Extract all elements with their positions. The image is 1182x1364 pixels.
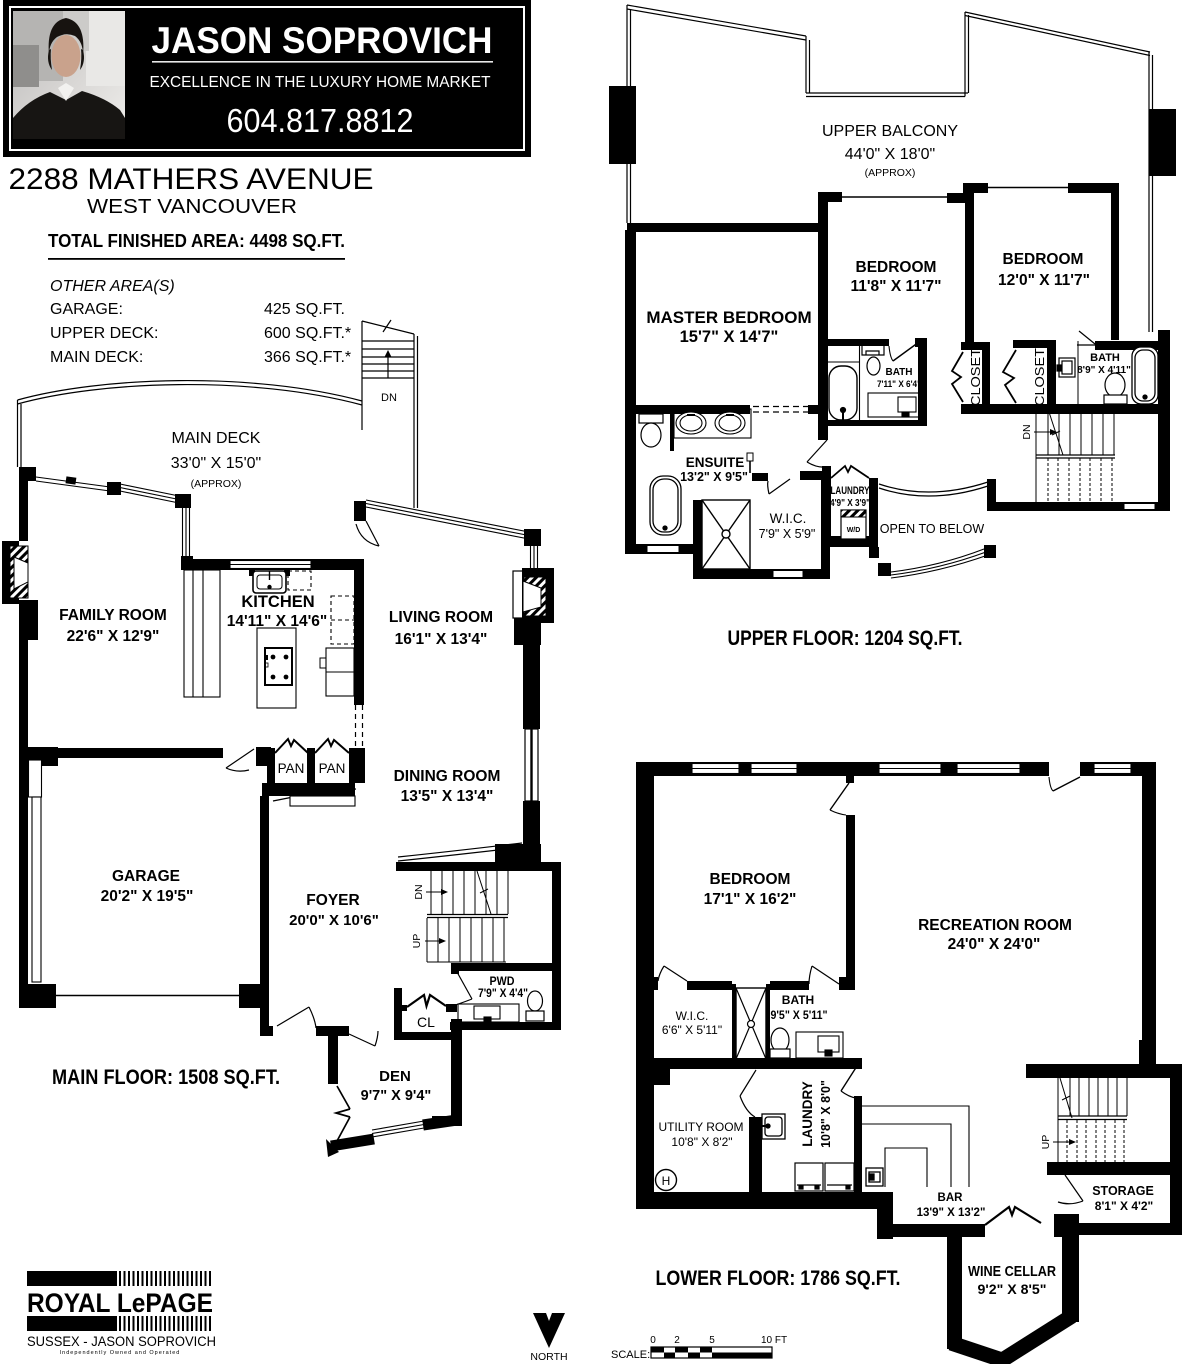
svg-text:MASTER BEDROOM: MASTER BEDROOM xyxy=(646,308,811,327)
svg-text:BATH: BATH xyxy=(782,993,814,1007)
svg-text:604.817.8812: 604.817.8812 xyxy=(227,102,414,139)
svg-text:(APPROX): (APPROX) xyxy=(865,167,916,179)
svg-text:EXCELLENCE IN THE LUXURY HOME: EXCELLENCE IN THE LUXURY HOME MARKET xyxy=(150,74,492,91)
svg-text:PAN: PAN xyxy=(278,761,305,776)
svg-text:MAIN DECK: MAIN DECK xyxy=(172,430,261,447)
svg-text:20'2" X 19'5": 20'2" X 19'5" xyxy=(101,888,194,905)
svg-text:8'9" X 4'11": 8'9" X 4'11" xyxy=(1077,365,1131,376)
svg-text:17'1" X 16'2": 17'1" X 16'2" xyxy=(704,891,797,908)
svg-text:366 SQ.FT.*: 366 SQ.FT.* xyxy=(264,349,351,366)
svg-text:13'2" X 9'5": 13'2" X 9'5" xyxy=(680,470,748,484)
svg-text:BEDROOM: BEDROOM xyxy=(856,259,937,276)
svg-text:LIVING ROOM: LIVING ROOM xyxy=(389,609,493,626)
svg-text:OPEN TO BELOW: OPEN TO BELOW xyxy=(880,522,985,536)
svg-text:5: 5 xyxy=(709,1335,715,1346)
svg-text:LOWER FLOOR: 1786 SQ.FT.: LOWER FLOOR: 1786 SQ.FT. xyxy=(656,1267,901,1290)
svg-text:WINE CELLAR: WINE CELLAR xyxy=(968,1264,1056,1280)
svg-text:DN: DN xyxy=(381,392,397,404)
svg-text:CL: CL xyxy=(417,1014,435,1030)
svg-text:9'7" X 9'4": 9'7" X 9'4" xyxy=(361,1088,432,1104)
svg-text:UPPER BALCONY: UPPER BALCONY xyxy=(822,123,958,140)
svg-text:BAR: BAR xyxy=(938,1192,964,1204)
svg-text:Independently Owned and Operat: Independently Owned and Operated xyxy=(60,1350,181,1356)
svg-text:15'7" X 14'7": 15'7" X 14'7" xyxy=(680,328,779,346)
svg-text:10'8" X 8'0": 10'8" X 8'0" xyxy=(819,1080,833,1148)
svg-text:9'2" X 8'5": 9'2" X 8'5" xyxy=(978,1282,1047,1297)
svg-text:44'0" X 18'0": 44'0" X 18'0" xyxy=(845,146,935,163)
svg-text:H: H xyxy=(662,1174,671,1188)
svg-text:UP: UP xyxy=(411,934,423,949)
svg-text:KITCHEN: KITCHEN xyxy=(241,593,314,611)
svg-text:UP: UP xyxy=(1040,1135,1052,1150)
svg-text:BEDROOM: BEDROOM xyxy=(710,871,791,888)
svg-text:LAUNDRY: LAUNDRY xyxy=(831,485,870,497)
svg-text:9'5" X 5'11": 9'5" X 5'11" xyxy=(771,1008,828,1022)
svg-text:BEDROOM: BEDROOM xyxy=(1003,251,1084,268)
svg-text:10'8" X 8'2": 10'8" X 8'2" xyxy=(671,1135,732,1149)
svg-text:2288 MATHERS AVENUE: 2288 MATHERS AVENUE xyxy=(9,163,374,196)
svg-text:RECREATION ROOM: RECREATION ROOM xyxy=(918,917,1072,934)
svg-text:6'6" X 5'11": 6'6" X 5'11" xyxy=(662,1023,722,1037)
svg-text:ENSUITE: ENSUITE xyxy=(686,455,745,470)
svg-text:BATH: BATH xyxy=(885,367,912,378)
svg-text:4'9" X 3'9": 4'9" X 3'9" xyxy=(830,498,870,509)
svg-text:CLOSET: CLOSET xyxy=(968,348,983,406)
svg-text:ROYAL LePAGE: ROYAL LePAGE xyxy=(27,1288,213,1318)
svg-text:11'8" X 11'7": 11'8" X 11'7" xyxy=(850,278,941,295)
svg-text:UPPER FLOOR: 1204 SQ.FT.: UPPER FLOOR: 1204 SQ.FT. xyxy=(728,627,963,650)
svg-text:SCALE:: SCALE: xyxy=(611,1349,650,1361)
svg-text:WEST VANCOUVER: WEST VANCOUVER xyxy=(87,196,297,218)
svg-text:PWD: PWD xyxy=(490,976,515,988)
svg-text:13'5" X 13'4": 13'5" X 13'4" xyxy=(401,788,494,805)
svg-text:DINING ROOM: DINING ROOM xyxy=(394,768,501,785)
svg-text:14'11" X 14'6": 14'11" X 14'6" xyxy=(227,613,328,630)
svg-text:(APPROX): (APPROX) xyxy=(191,478,242,490)
svg-text:600 SQ.FT.*: 600 SQ.FT.* xyxy=(264,325,351,342)
svg-text:UPPER DECK:: UPPER DECK: xyxy=(50,325,158,342)
svg-text:SUSSEX - JASON SOPROVICH: SUSSEX - JASON SOPROVICH xyxy=(27,1334,216,1349)
svg-text:16'1" X 13'4": 16'1" X 13'4" xyxy=(395,631,488,648)
svg-text:PAN: PAN xyxy=(319,761,346,776)
svg-text:W/D: W/D xyxy=(847,527,861,534)
svg-text:STORAGE: STORAGE xyxy=(1092,1184,1154,1198)
svg-text:GARAGE: GARAGE xyxy=(112,868,180,885)
svg-text:10 FT: 10 FT xyxy=(761,1335,787,1346)
svg-text:LAUNDRY: LAUNDRY xyxy=(800,1081,815,1147)
svg-text:DN: DN xyxy=(1021,424,1033,439)
svg-text:13'9" X 13'2": 13'9" X 13'2" xyxy=(917,1207,986,1219)
svg-text:W.I.C.: W.I.C. xyxy=(676,1009,709,1023)
svg-text:MAIN DECK:: MAIN DECK: xyxy=(50,349,143,366)
svg-text:33'0" X 15'0": 33'0" X 15'0" xyxy=(171,455,261,472)
svg-text:TOTAL FINISHED AREA: 4498 SQ.: TOTAL FINISHED AREA: 4498 SQ.FT. xyxy=(48,230,345,251)
svg-text:8'1" X 4'2": 8'1" X 4'2" xyxy=(1095,1199,1153,1213)
svg-text:DEN: DEN xyxy=(379,1068,411,1085)
svg-text:UTILITY ROOM: UTILITY ROOM xyxy=(658,1120,743,1134)
svg-text:MAIN FLOOR: 1508 SQ.FT.: MAIN FLOOR: 1508 SQ.FT. xyxy=(52,1066,280,1089)
svg-text:7'9" X 4'4": 7'9" X 4'4" xyxy=(478,988,528,1000)
svg-text:FAMILY ROOM: FAMILY ROOM xyxy=(59,607,167,624)
svg-text:2: 2 xyxy=(674,1335,680,1346)
svg-text:DN: DN xyxy=(413,884,425,899)
svg-text:12'0" X 11'7": 12'0" X 11'7" xyxy=(998,272,1090,289)
svg-text:CLOSET: CLOSET xyxy=(1032,348,1047,406)
svg-text:7'9" X 5'9": 7'9" X 5'9" xyxy=(759,527,816,541)
svg-text:7'11" X 6'4": 7'11" X 6'4" xyxy=(877,379,921,390)
svg-text:0: 0 xyxy=(650,1335,656,1346)
svg-text:W.I.C.: W.I.C. xyxy=(770,511,807,526)
svg-text:FOYER: FOYER xyxy=(306,892,359,909)
svg-text:GARAGE:: GARAGE: xyxy=(50,301,123,318)
svg-text:NORTH: NORTH xyxy=(530,1351,567,1363)
svg-text:22'6" X 12'9": 22'6" X 12'9" xyxy=(67,628,160,645)
svg-text:JASON SOPROVICH: JASON SOPROVICH xyxy=(152,20,493,61)
svg-text:24'0" X 24'0": 24'0" X 24'0" xyxy=(948,936,1041,953)
svg-text:OTHER AREA(S): OTHER AREA(S) xyxy=(50,278,175,295)
svg-text:425 SQ.FT.: 425 SQ.FT. xyxy=(264,301,345,318)
svg-text:BATH: BATH xyxy=(1090,352,1120,364)
svg-text:20'0" X 10'6": 20'0" X 10'6" xyxy=(289,912,379,929)
